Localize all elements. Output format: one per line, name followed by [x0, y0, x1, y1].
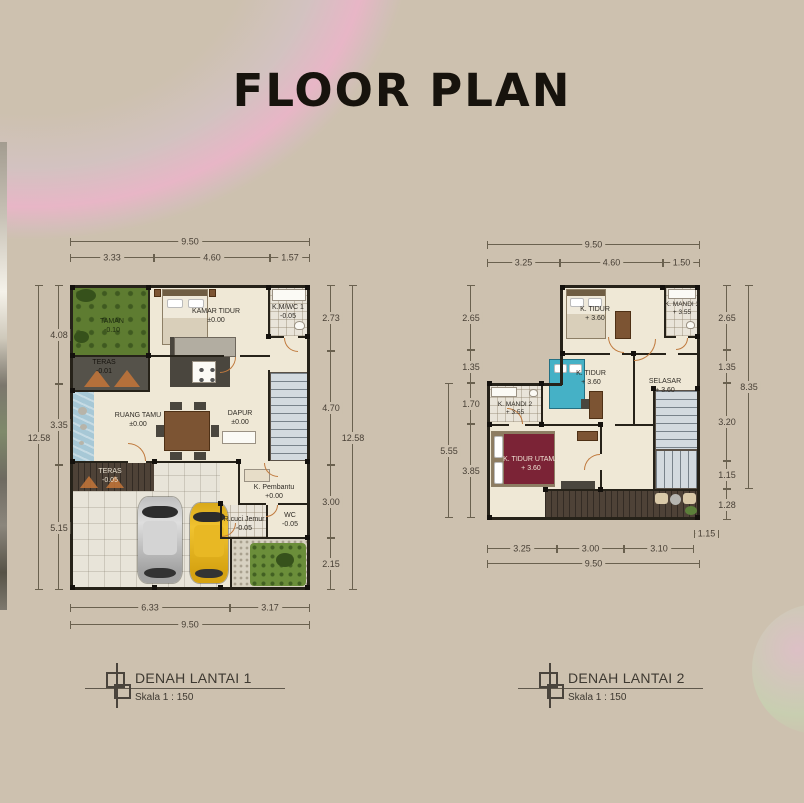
room-name: SELASAR — [649, 377, 681, 386]
dim-value: 4.60 — [600, 258, 624, 268]
dim-line: 2.65 — [470, 285, 471, 350]
room-level: + 3.60 — [580, 314, 610, 323]
dim-line: 2.15 — [330, 538, 331, 590]
plant-icon — [76, 289, 96, 302]
dim-line: 3.85 — [470, 424, 471, 518]
room-level: -0.05 — [282, 520, 298, 529]
label-teras-bawah: TERAS-0.05 — [98, 467, 121, 485]
laundry-sink — [655, 493, 668, 504]
wall — [697, 285, 700, 520]
dim-value: 9.50 — [178, 237, 202, 247]
dim-value: 3.25 — [510, 544, 534, 554]
wall — [148, 285, 150, 392]
dim-line: 6.33 — [70, 607, 230, 608]
room-level: ±0.00 — [192, 316, 240, 325]
wall — [487, 383, 562, 386]
pillow — [494, 462, 503, 484]
plan2-caption-scale: Skala 1 : 150 — [568, 692, 626, 703]
room-level: -0.05 — [98, 476, 121, 485]
wall — [268, 370, 270, 461]
car-windshield — [142, 506, 178, 517]
dim-value: 2.65 — [460, 312, 482, 324]
wardrobe — [615, 311, 631, 339]
wall — [268, 336, 284, 338]
dim-value: 3.00 — [579, 544, 603, 554]
dim-line: 4.60 — [560, 262, 663, 263]
room-name: TAMAN — [100, 317, 124, 326]
wall — [278, 503, 310, 505]
dim-value: 12.58 — [340, 432, 367, 444]
car-rear-window — [195, 569, 223, 578]
dim-value: 2.15 — [320, 558, 342, 570]
photo-edge-strip — [0, 142, 7, 610]
wall — [70, 587, 310, 590]
car-silver — [138, 497, 182, 583]
room-level: -0.10 — [100, 326, 124, 335]
dim-value: 3.85 — [460, 465, 482, 477]
dim-line: 5.55 — [448, 383, 449, 518]
dim-line: 12.58 — [352, 285, 353, 590]
dim-line: 9.50 — [487, 563, 700, 564]
page: FLOOR PLAN — [0, 0, 804, 803]
room-name: K. MANDI 3 — [665, 301, 699, 309]
dim-line: 4.70 — [330, 351, 331, 465]
section-marker-icon — [103, 666, 133, 706]
dim-line: 1.35 — [726, 350, 727, 383]
dim-line: 1.15 — [694, 533, 719, 534]
desk — [589, 391, 603, 419]
wall — [220, 537, 310, 539]
dining-chair — [211, 425, 219, 437]
dim-line: 9.50 — [70, 624, 310, 625]
room-name: K.M/WC 1 — [272, 303, 304, 312]
kitchen-counter-top — [174, 337, 236, 357]
nightstand — [154, 289, 161, 297]
dim-value: 3.25 — [512, 258, 536, 268]
room-level: +0.00 — [254, 492, 294, 501]
label-teras-atas: TERAS-0.01 — [92, 358, 115, 376]
dim-line: 3.33 — [70, 257, 154, 258]
label-k-tidur-tengah: K. TIDUR+ 3.60 — [576, 369, 606, 387]
dim-value: 5.15 — [48, 522, 70, 534]
wall — [487, 383, 490, 520]
wall — [70, 285, 310, 288]
label-k-pembantu: K. Pembantu+0.00 — [254, 483, 294, 501]
dim-line: 3.25 — [487, 262, 560, 263]
dim-value: 3.20 — [716, 416, 738, 428]
dim-value: 1.35 — [716, 361, 738, 373]
room-name: DAPUR — [228, 409, 253, 418]
label-k-tidur-utama: K. TIDUR UTAMA+ 3.60 — [503, 455, 559, 473]
bathtub — [668, 289, 696, 299]
wall — [238, 503, 266, 505]
dim-value: 9.50 — [582, 240, 606, 250]
staircase — [270, 372, 308, 461]
floor-plan-2: K. TIDUR+ 3.60 K. MANDI 3+ 3.55 K. TIDUR… — [487, 285, 700, 520]
bed-headboard — [567, 290, 605, 296]
label-wc: WC-0.05 — [282, 511, 298, 529]
column-markers — [70, 285, 75, 290]
wall — [240, 355, 270, 357]
wall — [633, 355, 635, 426]
dim-value: 8.35 — [738, 381, 760, 393]
plant-icon — [685, 506, 697, 515]
room-name: TERAS — [92, 358, 115, 367]
dim-value: 3.10 — [647, 544, 671, 554]
dim-line: 3.00 — [330, 465, 331, 538]
dim-value: 3.00 — [320, 496, 342, 508]
dim-line: 1.35 — [470, 350, 471, 383]
label-kmwc1: K.M/WC 1-0.05 — [272, 303, 304, 321]
label-r-cuci: R.cuci Jemur-0.05 — [224, 515, 265, 533]
dim-line: 3.25 — [487, 548, 557, 549]
dim-value: 2.73 — [320, 312, 342, 324]
car-roof — [143, 521, 177, 555]
dim-value: 12.58 — [26, 432, 53, 444]
dim-value: 1.35 — [460, 361, 482, 373]
zigzag-decoration — [114, 370, 140, 387]
plan1-caption-title: DENAH LANTAI 1 — [135, 670, 252, 686]
dim-line: 1.50 — [663, 262, 700, 263]
dim-value: 9.50 — [582, 559, 606, 569]
wall — [664, 336, 676, 338]
dim-value: 1.15 — [695, 529, 719, 539]
bed-headboard — [163, 290, 207, 296]
dim-value: 6.33 — [138, 603, 162, 613]
wall — [487, 517, 700, 520]
wall — [230, 537, 232, 588]
label-selasar: SELASAR+ 3.60 — [649, 377, 681, 395]
fish-pond — [72, 392, 94, 462]
pillow — [167, 299, 183, 308]
room-level: ±0.00 — [115, 420, 161, 429]
room-name: RUANG TAMU — [115, 411, 161, 420]
desk-chair — [581, 399, 589, 409]
dim-value: 4.08 — [48, 329, 70, 341]
car-yellow — [190, 503, 228, 583]
dim-value: 5.55 — [438, 445, 460, 457]
dim-value: 1.70 — [460, 398, 482, 410]
zigzag-decoration — [80, 476, 98, 488]
wall — [307, 285, 310, 590]
staircase-upper — [655, 390, 698, 450]
dim-line: 1.70 — [470, 383, 471, 424]
room-name: TERAS — [98, 467, 121, 476]
wall — [70, 285, 73, 590]
dim-line: 1.28 — [726, 489, 727, 520]
wall — [615, 424, 655, 426]
dim-value: 2.65 — [716, 312, 738, 324]
label-k-mandi2: K. MANDI 2+ 3.55 — [498, 401, 532, 418]
nightstand — [209, 289, 216, 297]
dim-line: 3.10 — [624, 548, 694, 549]
room-level: + 3.60 — [649, 386, 681, 395]
staircase-lower — [655, 450, 698, 489]
dining-chair — [194, 402, 206, 410]
dining-chair — [194, 452, 206, 460]
room-name: K. Pembantu — [254, 483, 294, 492]
room-name: K. TIDUR UTAMA — [503, 455, 559, 464]
dim-line: 8.35 — [748, 285, 749, 489]
wall — [600, 426, 602, 454]
wall — [562, 353, 610, 355]
dim-line: 3.20 — [726, 383, 727, 461]
wall — [268, 285, 270, 338]
dim-value: 4.70 — [320, 402, 342, 414]
label-dapur: DAPUR±0.00 — [228, 409, 253, 427]
room-level: + 3.55 — [498, 409, 532, 417]
dining-chair — [170, 452, 182, 460]
pastel-bubble-decoration — [0, 0, 410, 240]
plan2-caption-title: DENAH LANTAI 2 — [568, 670, 685, 686]
dim-value: 1.15 — [716, 469, 738, 481]
room-level: -0.05 — [272, 312, 304, 321]
room-name: K. MANDI 2 — [498, 401, 532, 409]
room-name: K. TIDUR — [580, 305, 610, 314]
room-name: WC — [282, 511, 298, 520]
dim-line: 3.00 — [557, 548, 624, 549]
room-level: + 3.60 — [576, 378, 606, 387]
wall — [560, 285, 700, 288]
dim-line: 1.15 — [726, 461, 727, 489]
dining-table — [164, 411, 210, 451]
pastel-bubble-decoration — [752, 604, 804, 734]
room-level: + 3.55 — [665, 309, 699, 317]
dim-line: 4.08 — [58, 285, 59, 384]
dim-value: 1.57 — [278, 253, 302, 263]
dim-line: 2.65 — [726, 285, 727, 350]
column-markers — [560, 285, 565, 290]
wall — [600, 470, 602, 491]
wall — [150, 355, 224, 357]
marker-rect — [114, 684, 131, 699]
wall — [72, 461, 128, 463]
room-name: KAMAR TIDUR — [192, 307, 240, 316]
dim-line: 2.73 — [330, 285, 331, 351]
caption-plan1: DENAH LANTAI 1 Skala 1 : 150 — [85, 666, 285, 708]
dim-line: 3.35 — [58, 384, 59, 465]
pillow — [494, 436, 503, 458]
room-level: -0.05 — [224, 524, 265, 533]
wall — [653, 388, 655, 489]
dim-line: 3.17 — [230, 607, 310, 608]
dim-line: 9.50 — [487, 244, 700, 245]
bathtub — [491, 387, 517, 397]
wall — [525, 424, 600, 426]
room-level: -0.01 — [92, 367, 115, 376]
dim-value: 1.50 — [670, 258, 694, 268]
page-title: FLOOR PLAN — [0, 64, 804, 117]
kitchen-sink-unit — [222, 431, 256, 444]
washing-drum — [670, 494, 681, 505]
wall — [487, 424, 509, 426]
bathtub — [272, 289, 306, 301]
caption-plan2: DENAH LANTAI 2 Skala 1 : 150 — [518, 666, 703, 708]
floor-plan-1: CARPORT TAMAN-0.10 TERAS-0.01 KAMAR TIDU… — [70, 285, 310, 590]
dim-line: 1.57 — [270, 257, 310, 258]
toilet — [686, 321, 695, 329]
room-name: K. TIDUR — [576, 369, 606, 378]
wall — [72, 390, 150, 392]
dim-value: 3.33 — [100, 253, 124, 263]
pond-stones — [78, 407, 87, 415]
dim-value: 3.35 — [48, 419, 70, 431]
wall — [238, 461, 240, 505]
laundry-sink — [683, 493, 696, 504]
wall — [688, 336, 700, 338]
wall — [72, 355, 150, 357]
toilet — [294, 321, 305, 330]
car-rear-window — [144, 568, 177, 577]
wall — [545, 489, 698, 491]
label-k-tidur-atas: K. TIDUR+ 3.60 — [580, 305, 610, 323]
section-marker-icon — [536, 666, 566, 706]
wall — [146, 461, 240, 463]
dresser — [577, 431, 598, 441]
dim-value: 3.17 — [258, 603, 282, 613]
plant-icon — [276, 553, 294, 567]
dim-value: 1.28 — [716, 499, 738, 511]
wall — [298, 336, 310, 338]
room-level: + 3.60 — [503, 464, 559, 473]
stove — [192, 361, 216, 383]
label-k-mandi3: K. MANDI 3+ 3.55 — [665, 301, 699, 318]
plan1-caption-scale: Skala 1 : 150 — [135, 692, 193, 703]
wall — [560, 285, 563, 385]
label-ruang-tamu: RUANG TAMU±0.00 — [115, 411, 161, 429]
plant-icon — [74, 331, 89, 343]
room-name: R.cuci Jemur — [224, 515, 265, 524]
dim-line: 5.15 — [58, 465, 59, 590]
toilet — [529, 389, 538, 397]
wall — [541, 385, 543, 426]
room-level: ±0.00 — [228, 418, 253, 427]
marker-rect — [547, 684, 564, 699]
dim-value: 9.50 — [178, 620, 202, 630]
label-kamar-tidur: KAMAR TIDUR±0.00 — [192, 307, 240, 325]
wall — [678, 353, 700, 355]
dim-value: 4.60 — [200, 253, 224, 263]
dim-line: 9.50 — [70, 241, 310, 242]
dining-chair — [170, 402, 182, 410]
dim-line: 4.60 — [154, 257, 270, 258]
dim-line: 12.58 — [38, 285, 39, 590]
label-taman: TAMAN-0.10 — [100, 317, 124, 335]
